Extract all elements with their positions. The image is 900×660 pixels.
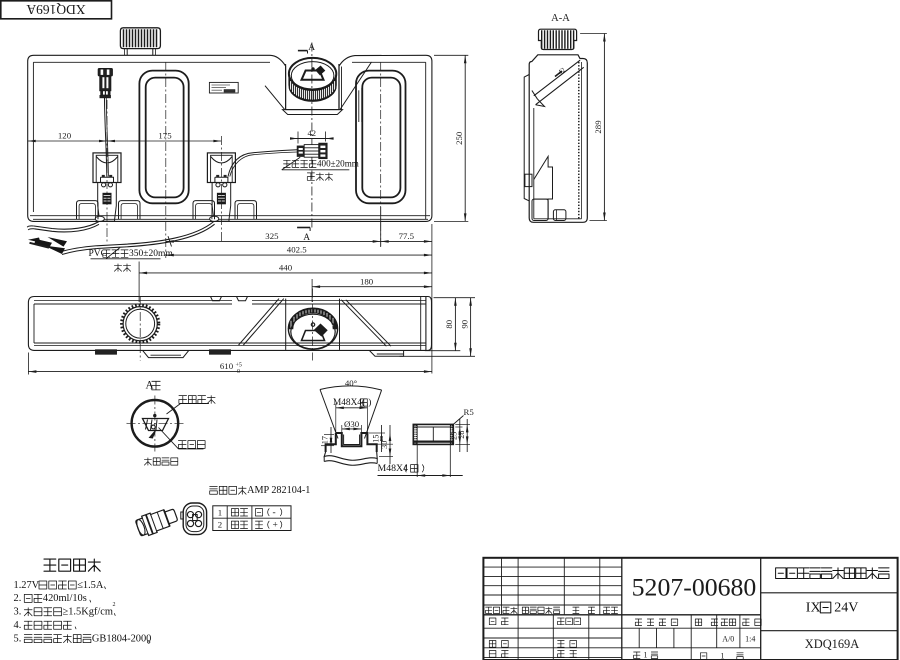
svg-text:402.5: 402.5 xyxy=(287,245,307,255)
svg-text:350±20mm: 350±20mm xyxy=(129,249,173,259)
svg-text:0: 0 xyxy=(237,369,240,375)
svg-text:440: 440 xyxy=(279,263,293,273)
svg-text:610: 610 xyxy=(220,361,234,371)
svg-text:XDQ169A: XDQ169A xyxy=(805,637,859,651)
svg-text:80: 80 xyxy=(444,319,454,328)
svg-text:30: 30 xyxy=(380,441,389,449)
svg-text:2.: 2. xyxy=(14,593,22,604)
svg-text:2: 2 xyxy=(113,602,116,608)
svg-text:289: 289 xyxy=(593,120,603,134)
svg-text:4.: 4. xyxy=(14,620,22,631)
svg-text:AMP 282104-1: AMP 282104-1 xyxy=(247,485,310,496)
svg-text:+: + xyxy=(273,520,278,530)
svg-text:5.: 5. xyxy=(14,633,22,644)
svg-text:1: 1 xyxy=(644,651,648,660)
svg-text:XDQ169A: XDQ169A xyxy=(26,2,85,17)
svg-text:175: 175 xyxy=(158,131,172,141)
svg-text:2: 2 xyxy=(218,520,222,530)
svg-text:M48X4: M48X4 xyxy=(378,463,409,474)
svg-text:1: 1 xyxy=(721,651,725,660)
svg-text:M48X4(: M48X4( xyxy=(333,397,365,408)
svg-text:420ml/10s: 420ml/10s xyxy=(43,593,87,604)
svg-text:250: 250 xyxy=(454,131,464,145)
svg-text:180: 180 xyxy=(360,276,374,286)
svg-text:1: 1 xyxy=(218,507,222,517)
svg-text:≥1.5Kgf/cm: ≥1.5Kgf/cm xyxy=(63,607,113,618)
svg-text:42: 42 xyxy=(308,128,317,138)
svg-text:Ø30: Ø30 xyxy=(344,419,360,429)
svg-text:1.27V: 1.27V xyxy=(14,580,40,591)
svg-text:17: 17 xyxy=(321,436,330,444)
svg-text:5207-00680: 5207-00680 xyxy=(632,573,757,602)
svg-text:R5: R5 xyxy=(464,407,475,417)
svg-text:+5: +5 xyxy=(236,362,242,368)
svg-text:325: 325 xyxy=(265,231,279,241)
svg-text:120: 120 xyxy=(58,131,72,141)
svg-text:90: 90 xyxy=(459,319,469,328)
svg-text:28: 28 xyxy=(457,431,466,439)
svg-text:A-A: A-A xyxy=(551,13,570,24)
svg-text:GB1804-2000: GB1804-2000 xyxy=(92,633,151,644)
svg-text:77.5: 77.5 xyxy=(399,231,415,241)
svg-text:A: A xyxy=(308,43,315,53)
svg-text:-: - xyxy=(273,508,276,518)
svg-text:A: A xyxy=(146,380,154,392)
svg-text:A/0: A/0 xyxy=(722,634,734,643)
svg-text:): ) xyxy=(368,397,371,408)
svg-text:≤1.5A: ≤1.5A xyxy=(77,580,104,591)
svg-text:400±20mm: 400±20mm xyxy=(317,158,359,168)
svg-text:24V: 24V xyxy=(831,600,859,615)
svg-text:IX: IX xyxy=(806,600,821,615)
svg-text:3.: 3. xyxy=(14,607,22,618)
svg-text:1:4: 1:4 xyxy=(745,634,755,643)
svg-text:40°: 40° xyxy=(345,378,358,388)
svg-text:PVC: PVC xyxy=(89,249,107,259)
